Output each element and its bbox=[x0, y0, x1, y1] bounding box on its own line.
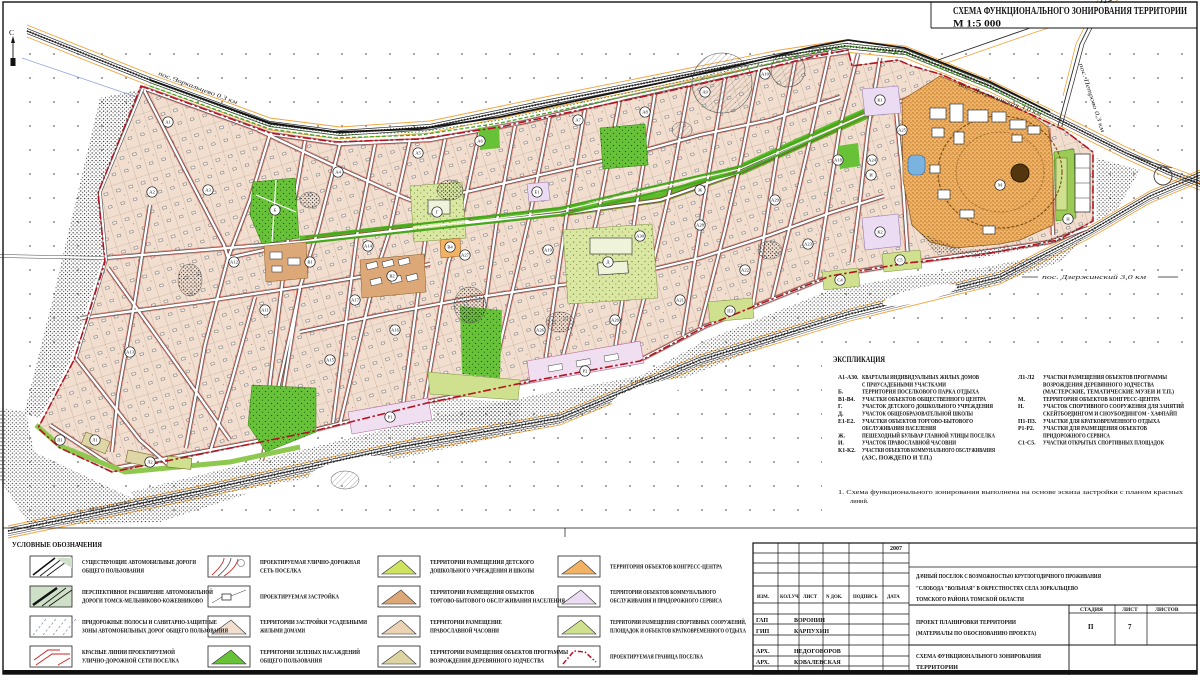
svg-text:УЧАСТКИ РАЗМЕЩЕНИЯ ОБЪЕКТОВ ПР: УЧАСТКИ РАЗМЕЩЕНИЯ ОБЪЕКТОВ ПРОГРАММЫ bbox=[1043, 375, 1167, 381]
svg-text:В1-В4.: В1-В4. bbox=[838, 397, 855, 403]
svg-text:А6: А6 bbox=[477, 139, 483, 144]
svg-text:ПРОЕКТИРУЕМАЯ ЗАСТРОЙКА: ПРОЕКТИРУЕМАЯ ЗАСТРОЙКА bbox=[260, 593, 340, 601]
svg-text:В1: В1 bbox=[307, 260, 313, 265]
svg-text:ЭКСПЛИКАЦИЯ: ЭКСПЛИКАЦИЯ bbox=[833, 354, 885, 364]
svg-text:ПРИДОРОЖНЫЕ ПОЛОСЫ И САНИТАРНО: ПРИДОРОЖНЫЕ ПОЛОСЫ И САНИТАРНО-ЗАЩИТНЫЕ bbox=[82, 620, 217, 626]
svg-text:ПРОЕКТИРУЕМАЯ УЛИЧНО-ДОРОЖНАЯ: ПРОЕКТИРУЕМАЯ УЛИЧНО-ДОРОЖНАЯ bbox=[260, 560, 361, 566]
svg-text:ПЕШЕХОДНЫЙ БУЛЬВАР ГЛАВНОЙ УЛИ: ПЕШЕХОДНЫЙ БУЛЬВАР ГЛАВНОЙ УЛИЦЫ ПОСЕЛКА bbox=[862, 431, 996, 439]
svg-text:ПЕРСПЕКТИВНОЕ РАСШИРЕНИЕ АВТОМ: ПЕРСПЕКТИВНОЕ РАСШИРЕНИЕ АВТОМОБИЛЬНОЙ bbox=[82, 588, 213, 596]
svg-text:С5: С5 bbox=[897, 258, 903, 263]
svg-text:N ДОК.: N ДОК. bbox=[826, 595, 842, 600]
svg-text:А16: А16 bbox=[391, 328, 400, 333]
svg-text:АРХ.: АРХ. bbox=[756, 649, 770, 655]
svg-text:А7: А7 bbox=[575, 118, 581, 123]
svg-text:ВОРОНИН: ВОРОНИН bbox=[794, 618, 825, 624]
svg-text:"СЛОБОДА "ВОЛЬНАЯ" В ОКРЕСТНОС: "СЛОБОДА "ВОЛЬНАЯ" В ОКРЕСТНОСТЯХ СЕЛА З… bbox=[916, 585, 1078, 592]
svg-text:С4: С4 bbox=[837, 278, 843, 283]
svg-text:(МАТЕРИАЛЫ ПО ОБОСНОВАНИЮ ПРОЕ: (МАТЕРИАЛЫ ПО ОБОСНОВАНИЮ ПРОЕКТА) bbox=[916, 630, 1036, 637]
svg-text:УЧАСТКИ ОБЪЕКТОВ ТОРГОВО-БЫТОВ: УЧАСТКИ ОБЪЕКТОВ ТОРГОВО-БЫТОВОГО bbox=[862, 419, 973, 425]
svg-text:А23: А23 bbox=[804, 242, 813, 247]
svg-text:ГАП: ГАП bbox=[756, 618, 768, 624]
svg-text:А26: А26 bbox=[536, 328, 545, 333]
svg-text:Г.: Г. bbox=[838, 404, 843, 410]
svg-text:ЛИСТ: ЛИСТ bbox=[1122, 607, 1138, 613]
svg-text:Б.: Б. bbox=[838, 390, 844, 396]
svg-text:ПЛОЩАДОК И ОБЪЕКТОВ КРАТКОВРЕМ: ПЛОЩАДОК И ОБЪЕКТОВ КРАТКОВРЕМЕННОГО ОТД… bbox=[610, 629, 747, 635]
svg-text:И.: И. bbox=[838, 441, 845, 447]
svg-text:Н.: Н. bbox=[1018, 404, 1025, 410]
svg-text:А12: А12 bbox=[230, 260, 239, 265]
svg-text:УЧАСТКИ ДЛЯ КРАТКОВРЕМЕННОГО О: УЧАСТКИ ДЛЯ КРАТКОВРЕМЕННОГО ОТДЫХА bbox=[1043, 419, 1161, 425]
svg-text:АРХ.: АРХ. bbox=[756, 660, 770, 666]
svg-text:В4: В4 bbox=[447, 245, 453, 250]
svg-text:К1: К1 bbox=[877, 98, 883, 103]
svg-text:УЧАСТКИ ОТКРЫТЫХ СПОРТИВНЫХ ПЛ: УЧАСТКИ ОТКРЫТЫХ СПОРТИВНЫХ ПЛОЩАДОК bbox=[1043, 441, 1165, 447]
svg-text:М.: М. bbox=[1018, 397, 1025, 403]
svg-text:ТЕРРИТОРИЯ ПОСЕЛКОВОГО ПАРКА О: ТЕРРИТОРИЯ ПОСЕЛКОВОГО ПАРКА ОТДЫХА bbox=[862, 390, 980, 396]
svg-text:СЕТЬ ПОСЕЛКА: СЕТЬ ПОСЕЛКА bbox=[260, 569, 302, 575]
svg-text:А24: А24 bbox=[868, 158, 877, 163]
svg-text:А4: А4 bbox=[335, 170, 341, 175]
svg-text:А18: А18 bbox=[834, 158, 843, 163]
svg-text:ОБЩЕГО ПОЛЬЗОВАНИЯ: ОБЩЕГО ПОЛЬЗОВАНИЯ bbox=[260, 659, 323, 665]
svg-text:А15: А15 bbox=[326, 358, 335, 363]
svg-text:Р2: Р2 bbox=[583, 369, 589, 374]
svg-text:ДОШКОЛЬНОГО УЧРЕЖДЕНИЯ И ШКОЛЫ: ДОШКОЛЬНОГО УЧРЕЖДЕНИЯ И ШКОЛЫ bbox=[430, 569, 534, 575]
svg-text:КОЛ.УЧ: КОЛ.УЧ bbox=[780, 595, 799, 600]
svg-text:М 1:5 000: М 1:5 000 bbox=[953, 19, 1002, 29]
svg-text:ПОДПИСЬ: ПОДПИСЬ bbox=[853, 595, 878, 600]
svg-text:УЛИЧНО-ДОРОЖНОЙ СЕТИ ПОСЕЛКА: УЛИЧНО-ДОРОЖНОЙ СЕТИ ПОСЕЛКА bbox=[82, 657, 180, 665]
svg-text:(АЗС, ПОЖДЕПО И Т.П.): (АЗС, ПОЖДЕПО И Т.П.) bbox=[862, 454, 932, 461]
svg-text:ДОРОГИ ТОМСК-МЕЛЬНИКОВО-КОЖЕВН: ДОРОГИ ТОМСК-МЕЛЬНИКОВО-КОЖЕВНИКОВО bbox=[82, 599, 203, 605]
svg-text:КОВАЛЕВСКАЯ: КОВАЛЕВСКАЯ bbox=[794, 660, 841, 666]
svg-text:А8: А8 bbox=[642, 110, 648, 115]
svg-text:Л1-Л2: Л1-Л2 bbox=[1018, 375, 1034, 381]
svg-text:Р1-Р2.: Р1-Р2. bbox=[1018, 426, 1035, 432]
svg-text:ДАЧНЫЙ ПОСЕЛОК С ВОЗМОЖНОСТЬЮ: ДАЧНЫЙ ПОСЕЛОК С ВОЗМОЖНОСТЬЮ КРУГЛОГОДИ… bbox=[916, 572, 1101, 580]
svg-text:ОБСЛУЖИВАНИЯ И ПРИДОРОЖНОГО СЕ: ОБСЛУЖИВАНИЯ И ПРИДОРОЖНОГО СЕРВИСА bbox=[610, 599, 723, 605]
svg-text:СТАДИЯ: СТАДИЯ bbox=[1080, 607, 1103, 613]
svg-text:ТЕРРИТОРИИ РАЗМЕЩЕНИЯ СПОРТИВН: ТЕРРИТОРИИ РАЗМЕЩЕНИЯ СПОРТИВНЫХ СООРУЖЕ… bbox=[610, 618, 746, 626]
svg-text:ОБСЛУЖИВАНИЯ НАСЕЛЕНИЯ: ОБСЛУЖИВАНИЯ НАСЕЛЕНИЯ bbox=[862, 426, 937, 432]
svg-text:А9: А9 bbox=[702, 90, 708, 95]
svg-text:ТЕРРИТОРИЯ ОБЪЕКТОВ КОНГРЕСС-Ц: ТЕРРИТОРИЯ ОБЪЕКТОВ КОНГРЕСС-ЦЕНТРА bbox=[1043, 397, 1161, 403]
svg-text:УЧАСТКИ ОБЪЕКТОВ КОММУНАЛЬНОГО: УЧАСТКИ ОБЪЕКТОВ КОММУНАЛЬНОГО ОБСЛУЖИВА… bbox=[862, 448, 996, 454]
svg-text:линий.: линий. bbox=[850, 498, 869, 505]
svg-text:ТЕРРИТОРИИ ЗЕЛЕНЫХ НАСАЖДЕНИЙ: ТЕРРИТОРИИ ЗЕЛЕНЫХ НАСАЖДЕНИЙ bbox=[260, 648, 360, 656]
svg-text:А10: А10 bbox=[761, 72, 770, 77]
svg-text:П: П bbox=[1088, 623, 1094, 631]
svg-text:А25: А25 bbox=[898, 128, 907, 133]
svg-text:ТЕРРИТОРИИ РАЗМЕЩЕНИЯ ОБЪЕКТОВ: ТЕРРИТОРИИ РАЗМЕЩЕНИЯ ОБЪЕКТОВ ПРОГРАММЫ bbox=[430, 650, 568, 656]
svg-text:ЖИЛЫМИ ДОМАМИ: ЖИЛЫМИ ДОМАМИ bbox=[260, 629, 305, 635]
svg-text:А3: А3 bbox=[205, 188, 211, 193]
svg-text:УЧАСТОК ПРАВОСЛАВНОЙ ЧАСОВНИ: УЧАСТОК ПРАВОСЛАВНОЙ ЧАСОВНИ bbox=[862, 439, 956, 447]
svg-text:А20: А20 bbox=[611, 318, 620, 323]
svg-text:А13: А13 bbox=[126, 350, 135, 355]
svg-text:КАРПУХИН: КАРПУХИН bbox=[794, 629, 829, 635]
svg-text:ЛИСТОВ: ЛИСТОВ bbox=[1155, 607, 1179, 613]
svg-text:М: М bbox=[998, 183, 1002, 188]
svg-text:КВАРТАЛЫ ИНДИВИДУАЛЬНЫХ ЖИЛЫХ: КВАРТАЛЫ ИНДИВИДУАЛЬНЫХ ЖИЛЫХ ДОМОВ bbox=[862, 375, 979, 381]
svg-text:ВОЗРОЖДЕНИЯ ДЕРЕВЯННОГО ЗОДЧЕС: ВОЗРОЖДЕНИЯ ДЕРЕВЯННОГО ЗОДЧЕСТВА bbox=[430, 659, 545, 665]
svg-text:В2: В2 bbox=[389, 274, 395, 279]
svg-text:Л1: Л1 bbox=[92, 438, 98, 443]
svg-text:ОБЩЕГО ПОЛЬЗОВАНИЯ: ОБЩЕГО ПОЛЬЗОВАНИЯ bbox=[82, 569, 145, 575]
svg-text:УЧАСТКИ ОБЪЕКТОВ ОБЩЕСТВЕННОГО: УЧАСТКИ ОБЪЕКТОВ ОБЩЕСТВЕННОГО ЦЕНТРА bbox=[862, 397, 987, 403]
svg-text:ПРОЕКТИРУЕМАЯ ГРАНИЦА ПОСЕЛКА: ПРОЕКТИРУЕМАЯ ГРАНИЦА ПОСЕЛКА bbox=[610, 655, 704, 661]
svg-text:7: 7 bbox=[1128, 623, 1132, 631]
svg-text:С ПРИУСАДЕБНЫМИ УЧАСТКАМИ: С ПРИУСАДЕБНЫМИ УЧАСТКАМИ bbox=[862, 382, 946, 388]
svg-text:НЕДОГОВОРОВ: НЕДОГОВОРОВ bbox=[794, 649, 841, 655]
svg-text:2007: 2007 bbox=[890, 546, 902, 552]
svg-text:СУЩЕСТВУЮЩИЕ АВТОМОБИЛЬНЫЕ ДОР: СУЩЕСТВУЮЩИЕ АВТОМОБИЛЬНЫЕ ДОРОГИ bbox=[82, 560, 196, 566]
svg-text:А5: А5 bbox=[415, 151, 421, 156]
svg-text:Е1: Е1 bbox=[534, 190, 540, 195]
svg-text:1. Схема функционального зони: 1. Схема функционального зонирования вып… bbox=[838, 489, 1184, 496]
svg-text:Е1-Е2.: Е1-Е2. bbox=[838, 419, 855, 425]
svg-text:ПРАВОСЛАВНОЙ ЧАСОВНИ: ПРАВОСЛАВНОЙ ЧАСОВНИ bbox=[430, 627, 499, 635]
svg-text:ТЕРРИТОРИИ РАЗМЕЩЕНИЯ ОБЪЕКТОВ: ТЕРРИТОРИИ РАЗМЕЩЕНИЯ ОБЪЕКТОВ bbox=[430, 590, 534, 596]
svg-text:пос. Дзержинский 3,0 км: пос. Дзержинский 3,0 км bbox=[1042, 274, 1146, 281]
svg-text:А17: А17 bbox=[351, 298, 360, 303]
svg-text:А1: А1 bbox=[165, 120, 171, 125]
svg-text:А22: А22 bbox=[741, 268, 750, 273]
svg-text:ТОМСКОГО РАЙОНА ТОМСКОЙ ОБЛАСТ: ТОМСКОГО РАЙОНА ТОМСКОЙ ОБЛАСТИ bbox=[916, 595, 1024, 603]
svg-text:ТЕРРИТОРИИ ЗАСТРОЙКИ УСАДЕБНЫМ: ТЕРРИТОРИИ ЗАСТРОЙКИ УСАДЕБНЫМИ bbox=[260, 618, 367, 626]
svg-text:Г: Г bbox=[436, 210, 439, 215]
svg-text:Л2: Л2 bbox=[147, 460, 153, 465]
svg-text:Р1: Р1 bbox=[388, 415, 394, 420]
svg-text:ПРОЕКТ ПЛАНИРОВКИ ТЕРРИТОРИИ: ПРОЕКТ ПЛАНИРОВКИ ТЕРРИТОРИИ bbox=[916, 619, 1016, 626]
svg-text:ТЕРРИТОРИИ ОБЪЕКТОВ КОММУНАЛЬН: ТЕРРИТОРИИ ОБЪЕКТОВ КОММУНАЛЬНОГО bbox=[610, 590, 716, 596]
svg-text:А21: А21 bbox=[676, 298, 685, 303]
svg-text:ПРИДОРОЖНОГО СЕРВИСА: ПРИДОРОЖНОГО СЕРВИСА bbox=[1043, 433, 1111, 439]
svg-text:А30: А30 bbox=[636, 234, 645, 239]
svg-text:А19: А19 bbox=[544, 248, 553, 253]
svg-text:А27: А27 bbox=[461, 253, 470, 258]
svg-text:П1: П1 bbox=[57, 438, 63, 443]
svg-text:Б: Б bbox=[274, 208, 277, 213]
svg-text:А28: А28 bbox=[696, 223, 705, 228]
svg-text:ТЕРРИТОРИЯ ОБЪЕКТОВ КОНГРЕСС-Ц: ТЕРРИТОРИЯ ОБЪЕКТОВ КОНГРЕСС-ЦЕНТРА bbox=[610, 565, 723, 571]
svg-text:КРАСНЫЕ ЛИНИИ ПРОЕКТИРУЕМОЙ: КРАСНЫЕ ЛИНИИ ПРОЕКТИРУЕМОЙ bbox=[82, 648, 175, 656]
svg-text:УЧАСТКИ ДЛЯ РАЗМЕЩЕНИЯ ОБЪЕКТО: УЧАСТКИ ДЛЯ РАЗМЕЩЕНИЯ ОБЪЕКТОВ bbox=[1043, 426, 1147, 432]
svg-text:П1-П3.: П1-П3. bbox=[1018, 419, 1037, 425]
svg-text:ЗОНЫ АВТОМОБИЛЬНЫХ ДОРОГ ОБЩЕГ: ЗОНЫ АВТОМОБИЛЬНЫХ ДОРОГ ОБЩЕГО ПОЛЬЗОВА… bbox=[82, 629, 229, 635]
svg-text:А29: А29 bbox=[771, 198, 780, 203]
svg-text:СКЕЙТБОРДИНГОМ И СНОУБОРДИНГОМ: СКЕЙТБОРДИНГОМ И СНОУБОРДИНГОМ - ХАФПАЙП bbox=[1043, 410, 1177, 418]
svg-text:УЧАСТОК СПОРТИВНОГО СООРУЖЕНИЯ: УЧАСТОК СПОРТИВНОГО СООРУЖЕНИЯ ДЛЯ ЗАНЯТ… bbox=[1043, 402, 1184, 410]
svg-text:СХЕМА ФУНКЦИОНАЛЬНОГО ЗОНИРОВА: СХЕМА ФУНКЦИОНАЛЬНОГО ЗОНИРОВАНИЯ ТЕРРИТ… bbox=[953, 6, 1187, 17]
svg-text:УЧАСТОК ДЕТСКОГО ДОШКОЛЬНОГО У: УЧАСТОК ДЕТСКОГО ДОШКОЛЬНОГО УЧРЕЖДЕНИЯ bbox=[862, 404, 994, 410]
svg-text:ТЕРРИТОРИИ РАЗМЕЩЕНИЯ ДЕТСКОГО: ТЕРРИТОРИИ РАЗМЕЩЕНИЯ ДЕТСКОГО bbox=[430, 560, 534, 566]
svg-text:С1-С5.: С1-С5. bbox=[1018, 441, 1036, 447]
svg-text:СХЕМА ФУНКЦИОНАЛЬНОГО ЗОНИРОВА: СХЕМА ФУНКЦИОНАЛЬНОГО ЗОНИРОВАНИЯ bbox=[916, 653, 1041, 660]
svg-text:УСЛОВНЫЕ ОБОЗНАЧЕНИЯ: УСЛОВНЫЕ ОБОЗНАЧЕНИЯ bbox=[12, 540, 102, 549]
svg-text:А2: А2 bbox=[149, 190, 155, 195]
svg-text:ЛИСТ: ЛИСТ bbox=[803, 595, 818, 600]
svg-text:ВОЗРОЖДЕНИЯ ДЕРЕВЯННОГО ЗОДЧЕС: ВОЗРОЖДЕНИЯ ДЕРЕВЯННОГО ЗОДЧЕСТВА bbox=[1043, 382, 1155, 388]
svg-text:С: С bbox=[9, 28, 14, 37]
svg-text:ТЕРРИТОРИИ: ТЕРРИТОРИИ bbox=[916, 664, 958, 671]
svg-text:Д.: Д. bbox=[838, 412, 844, 418]
svg-text:ТЕРРИТОРИИ РАЗМЕЩЕНИЕ: ТЕРРИТОРИИ РАЗМЕЩЕНИЕ bbox=[430, 620, 502, 626]
svg-text:УЧАСТОК ОБЩЕОБРАЗОВАТЕЛЬНОЙ ШК: УЧАСТОК ОБЩЕОБРАЗОВАТЕЛЬНОЙ ШКОЛЫ bbox=[862, 410, 973, 418]
svg-text:К1-К2.: К1-К2. bbox=[838, 448, 856, 454]
svg-text:(МАСТЕРСКИЕ, ТЕМАТИЧЕСКИЕ МУЗЕ: (МАСТЕРСКИЕ, ТЕМАТИЧЕСКИЕ МУЗЕИ И Т.П.) bbox=[1043, 389, 1174, 396]
svg-text:ТОРГОВО-БЫТОВОГО ОБСЛУЖИВАНИЯ: ТОРГОВО-БЫТОВОГО ОБСЛУЖИВАНИЯ НАСЕЛЕНИЯ bbox=[430, 599, 566, 605]
svg-text:ИЗМ.: ИЗМ. bbox=[757, 595, 769, 600]
svg-text:ГИП: ГИП bbox=[756, 629, 769, 635]
svg-text:А14: А14 bbox=[364, 244, 373, 249]
svg-text:А11: А11 bbox=[261, 308, 269, 313]
svg-text:ДАТА: ДАТА bbox=[887, 595, 900, 600]
svg-text:П3: П3 bbox=[727, 309, 733, 314]
svg-text:Ж.: Ж. bbox=[838, 433, 846, 439]
svg-text:К2: К2 bbox=[877, 230, 883, 235]
svg-text:А1-А30.: А1-А30. bbox=[838, 375, 859, 381]
